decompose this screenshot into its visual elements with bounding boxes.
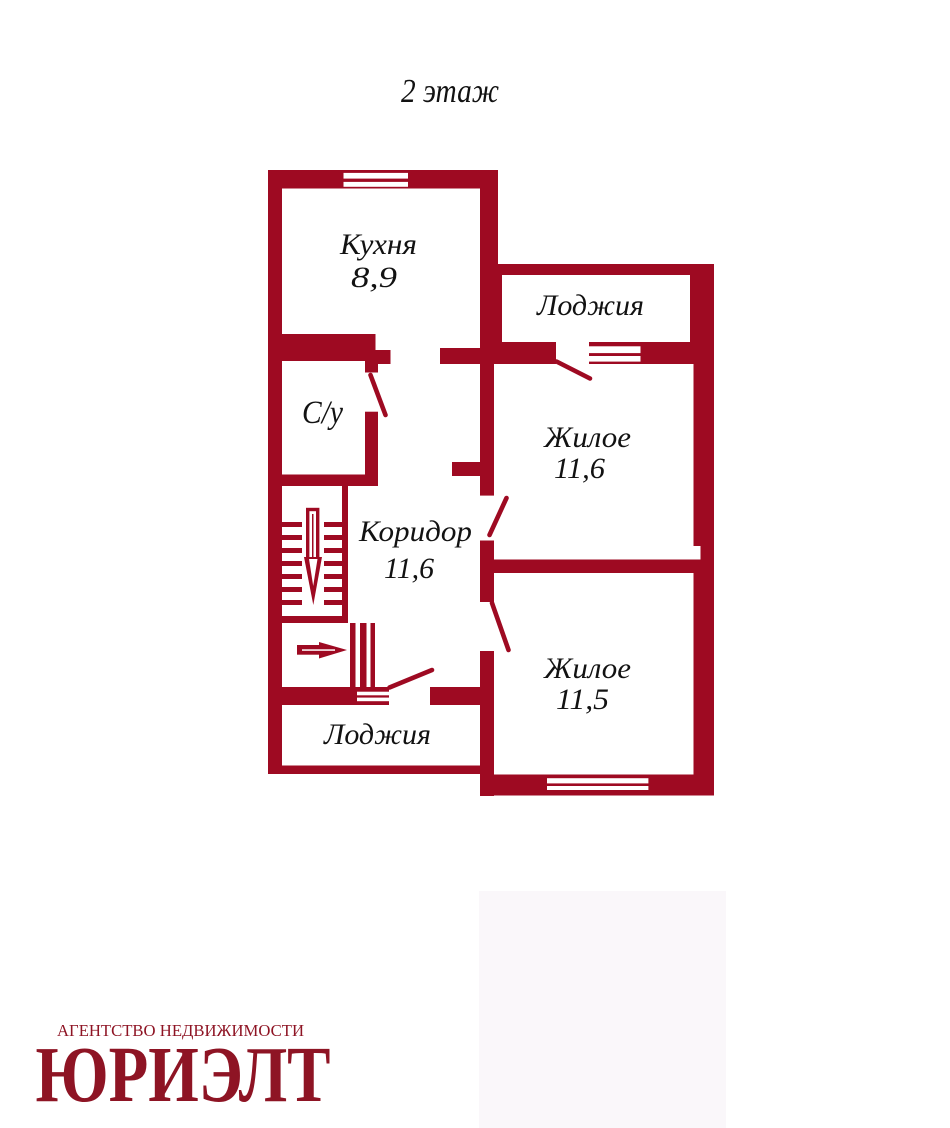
svg-text:С/у: С/у	[302, 395, 343, 431]
svg-text:ЮРИЭЛТ: ЮРИЭЛТ	[36, 1032, 331, 1119]
svg-text:11,6: 11,6	[384, 552, 434, 585]
svg-text:11,6: 11,6	[554, 452, 605, 485]
svg-text:Кухня: Кухня	[339, 228, 417, 261]
svg-text:Жилое: Жилое	[543, 652, 631, 685]
svg-text:11,5: 11,5	[556, 683, 609, 716]
svg-text:Коридор: Коридор	[358, 515, 472, 548]
svg-text:2 этаж: 2 этаж	[401, 73, 499, 110]
svg-text:Лоджия: Лоджия	[536, 289, 644, 322]
svg-text:8,9: 8,9	[351, 261, 397, 294]
svg-text:Лоджия: Лоджия	[323, 718, 431, 751]
svg-text:Жилое: Жилое	[543, 421, 631, 454]
